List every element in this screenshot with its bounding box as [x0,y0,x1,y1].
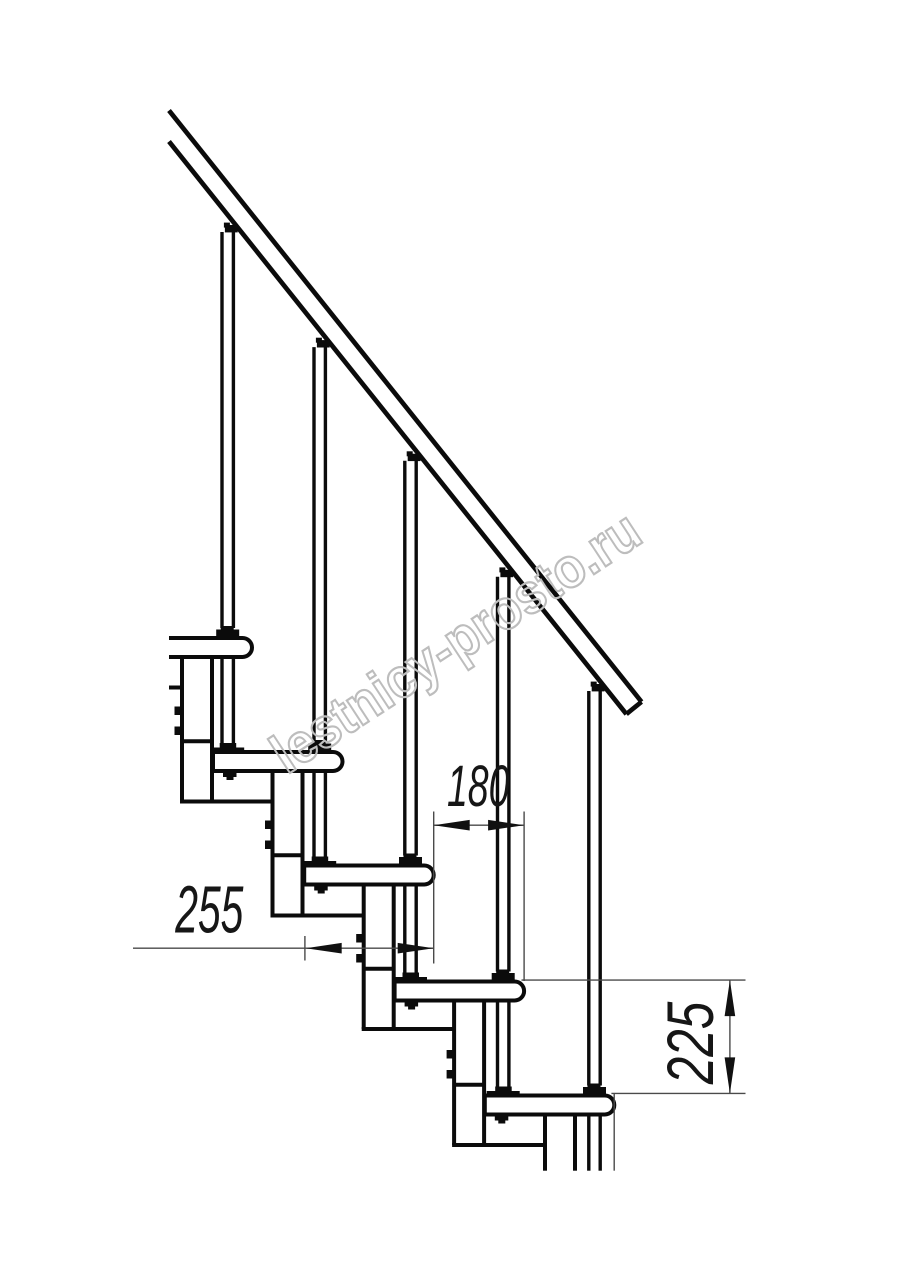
svg-text:255: 255 [174,872,243,947]
svg-text:180: 180 [447,755,509,819]
svg-text:225: 225 [654,1001,728,1085]
